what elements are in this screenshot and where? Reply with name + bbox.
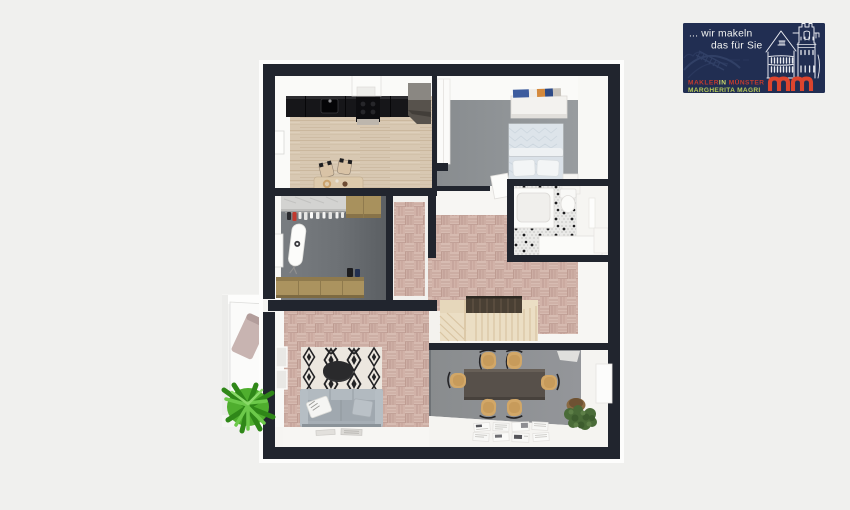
svg-text:MARGHERITA MAGRI: MARGHERITA MAGRI [688,87,761,94]
svg-text:... wir makeln: ... wir makeln [689,29,753,40]
svg-text:MAKLERIN MÜNSTER: MAKLERIN MÜNSTER [688,78,764,87]
svg-text:das für Sie: das für Sie [711,41,762,52]
